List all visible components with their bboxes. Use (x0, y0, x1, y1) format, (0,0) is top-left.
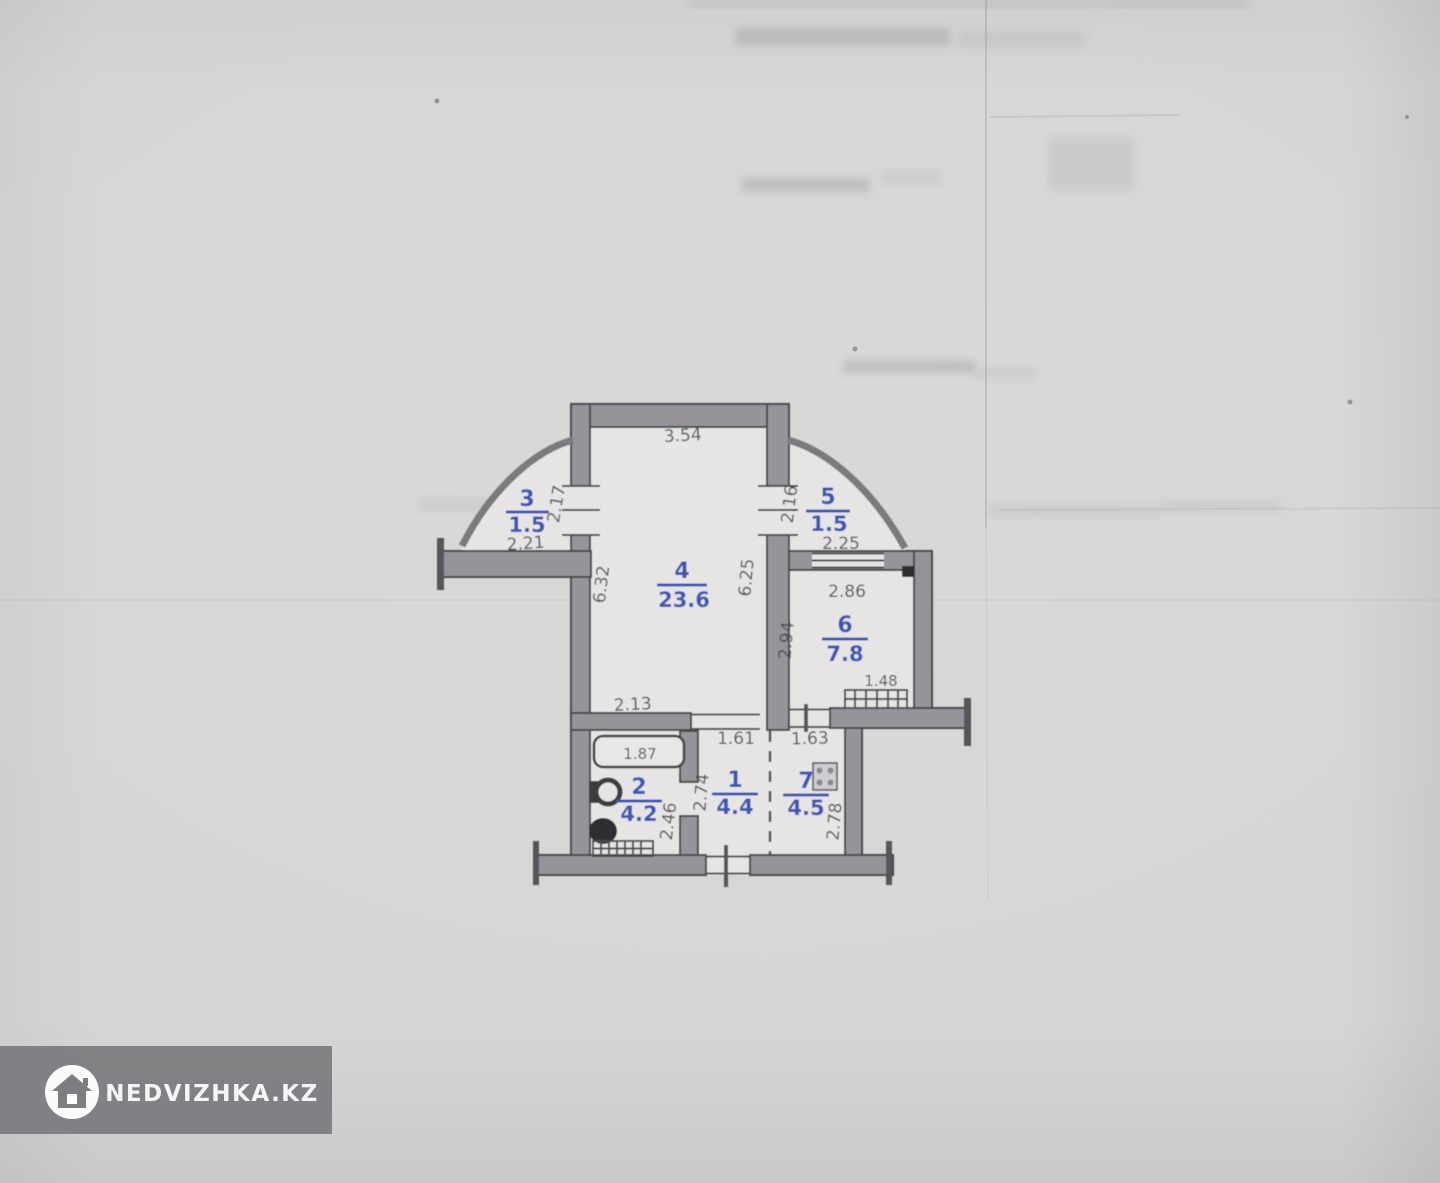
left-outer-wall (571, 404, 590, 862)
living-right-wall (767, 404, 789, 730)
dim-living-top: 3.54 (663, 425, 702, 447)
dim-duct-width: 1.48 (864, 672, 897, 690)
watermark-brand: NEDVIZHKA.KZ (105, 1081, 319, 1107)
dim-kitchen-width: 2.86 (828, 582, 866, 602)
stove-icon (813, 763, 837, 790)
dim-hall-height: 2.74 (690, 773, 713, 812)
svg-text:1.5: 1.5 (508, 513, 545, 537)
living-top-wall (571, 404, 789, 427)
watermark: NEDVIZHKA.KZ (0, 1046, 332, 1134)
svg-text:3: 3 (519, 487, 534, 512)
svg-text:1: 1 (727, 768, 742, 793)
svg-text:7.8: 7.8 (826, 642, 863, 666)
corridor-right-wall (845, 728, 862, 875)
floor-plan: 3.54 2.17 2.21 2.16 2.25 6.32 6.25 2.86 … (437, 404, 971, 887)
dim-kitchen-height: 2.94 (775, 621, 798, 660)
svg-text:23.6: 23.6 (658, 588, 710, 612)
svg-text:4.5: 4.5 (787, 796, 824, 820)
kitchen-right-wall (914, 551, 932, 728)
ventilation-duct (845, 690, 907, 708)
dim-corridor-top: 1.63 (791, 728, 830, 749)
dim-living-right-height: 6.25 (735, 558, 758, 597)
dim-bathtub-length: 1.87 (623, 745, 656, 763)
kitchen-bottom-wall (830, 708, 968, 728)
wall-notch (902, 566, 914, 577)
svg-text:4.4: 4.4 (716, 795, 753, 819)
svg-text:2: 2 (631, 775, 646, 800)
dim-bathroom-top: 2.13 (613, 694, 652, 716)
svg-text:6: 6 (837, 613, 852, 638)
entrance-door-opening (724, 845, 728, 887)
svg-text:5: 5 (820, 485, 835, 510)
svg-text:1.5: 1.5 (810, 512, 847, 536)
dim-hall-top: 1.61 (717, 729, 755, 749)
svg-text:4: 4 (674, 559, 689, 584)
svg-text:7: 7 (798, 769, 813, 794)
svg-text:4.2: 4.2 (620, 802, 657, 826)
floor-plan-scan: 3.54 2.17 2.21 2.16 2.25 6.32 6.25 2.86 … (0, 0, 1440, 1183)
dim-corridor-height: 2.78 (823, 802, 846, 841)
dim-balcony-right-width: 2.25 (822, 534, 860, 554)
